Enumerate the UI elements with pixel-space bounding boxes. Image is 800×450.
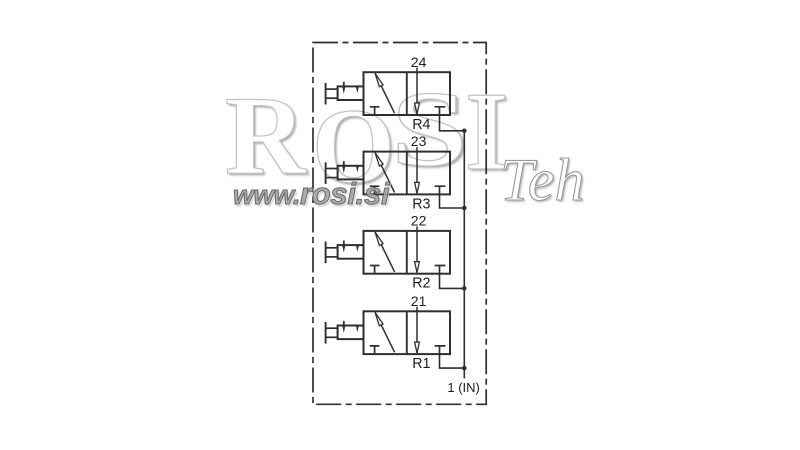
svg-text:R2: R2	[412, 276, 430, 292]
svg-text:R4: R4	[412, 117, 430, 133]
svg-text:R1: R1	[412, 356, 430, 372]
svg-text:22: 22	[411, 213, 427, 229]
svg-text:21: 21	[411, 293, 427, 309]
svg-text:R3: R3	[412, 196, 430, 212]
svg-text:1 (IN): 1 (IN)	[447, 380, 480, 395]
svg-text:23: 23	[411, 133, 427, 149]
svg-text:24: 24	[411, 54, 427, 70]
